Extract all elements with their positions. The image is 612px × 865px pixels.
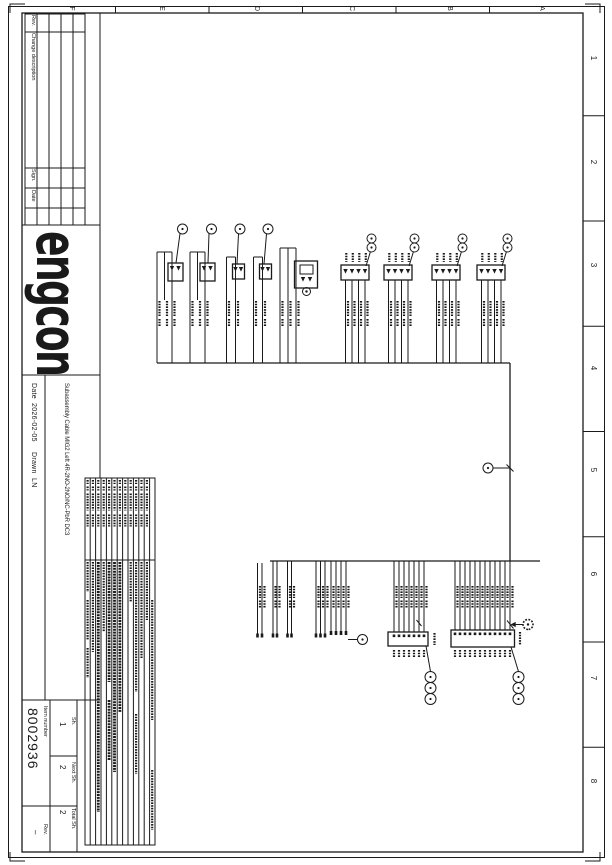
wire-group-pairs bbox=[258, 561, 326, 638]
revision-rev-label: Rev. bbox=[30, 15, 36, 26]
zone-col-2: 2 bbox=[589, 156, 597, 168]
wiring-schematic bbox=[157, 224, 540, 705]
revision-sign-label: Sign. bbox=[30, 169, 36, 182]
zone-col-1: 1 bbox=[589, 52, 597, 64]
item-number-label: Item number bbox=[42, 706, 48, 737]
item-number-value: 8002936 bbox=[26, 708, 40, 770]
zone-col-5: 5 bbox=[589, 464, 597, 476]
drawn-value: LN bbox=[30, 478, 37, 488]
drawing-title: Subassembly Cable MIG2 Left 4R-2NO-2NO/N… bbox=[63, 383, 69, 535]
next-sheet-value: 2 bbox=[58, 765, 66, 769]
loop-structure-5 bbox=[280, 248, 318, 363]
zone-col-6: 6 bbox=[589, 568, 597, 580]
loop-structure-1 bbox=[157, 224, 188, 363]
engcon-logo: engcon bbox=[27, 231, 84, 375]
connector-block-1 bbox=[341, 234, 376, 363]
zone-col-8: 8 bbox=[589, 775, 597, 787]
zone-row-c: C bbox=[348, 4, 355, 13]
zone-row-b: B bbox=[446, 4, 453, 13]
zone-row-d: D bbox=[253, 4, 260, 13]
zone-row-a: A bbox=[538, 4, 545, 13]
bom-table bbox=[85, 478, 155, 845]
zone-col-3: 3 bbox=[589, 259, 597, 271]
drawing-sheet: 1 2 3 4 5 6 7 8 F E D C B A Rev. Change … bbox=[0, 0, 612, 865]
connector-12pin bbox=[451, 561, 533, 705]
sheet-value: 1 bbox=[58, 722, 66, 726]
sheet-label: Sh. bbox=[70, 717, 76, 725]
drawn-label: Drawn bbox=[30, 452, 37, 474]
loop-structure-4 bbox=[254, 224, 274, 363]
connector-block-2 bbox=[384, 234, 419, 363]
date-label: Date bbox=[30, 383, 37, 399]
zone-col-4: 4 bbox=[589, 362, 597, 374]
drawing-frame bbox=[9, 4, 605, 861]
connector-block-4 bbox=[477, 234, 512, 363]
revision-date-label: Date bbox=[30, 190, 36, 202]
rotated-landscape-drawing: 1 2 3 4 5 6 7 8 F E D C B A Rev. Change … bbox=[0, 0, 612, 865]
loop-structure-2 bbox=[190, 224, 217, 363]
rev-label: Rev. bbox=[42, 824, 48, 835]
total-sheet-label: Total Sh. bbox=[70, 808, 76, 829]
rev-value: – bbox=[31, 830, 39, 834]
zone-row-f: F bbox=[68, 4, 75, 13]
revision-change-label: Change description bbox=[30, 33, 36, 80]
cable-balloon bbox=[483, 463, 514, 473]
next-sheet-label: Next Sh. bbox=[70, 762, 76, 783]
zone-row-e: E bbox=[158, 4, 165, 13]
gear-icon bbox=[507, 620, 533, 630]
loop-structure-3 bbox=[227, 224, 246, 363]
date-value: 2026-02-05 bbox=[30, 403, 37, 442]
schematic-canvas bbox=[0, 0, 612, 865]
wire-group-4wire bbox=[331, 561, 368, 645]
total-sheet-value: 2 bbox=[58, 810, 66, 814]
connector-7pin bbox=[388, 561, 436, 705]
connector-block-3 bbox=[432, 234, 467, 363]
zone-col-7: 7 bbox=[589, 672, 597, 684]
